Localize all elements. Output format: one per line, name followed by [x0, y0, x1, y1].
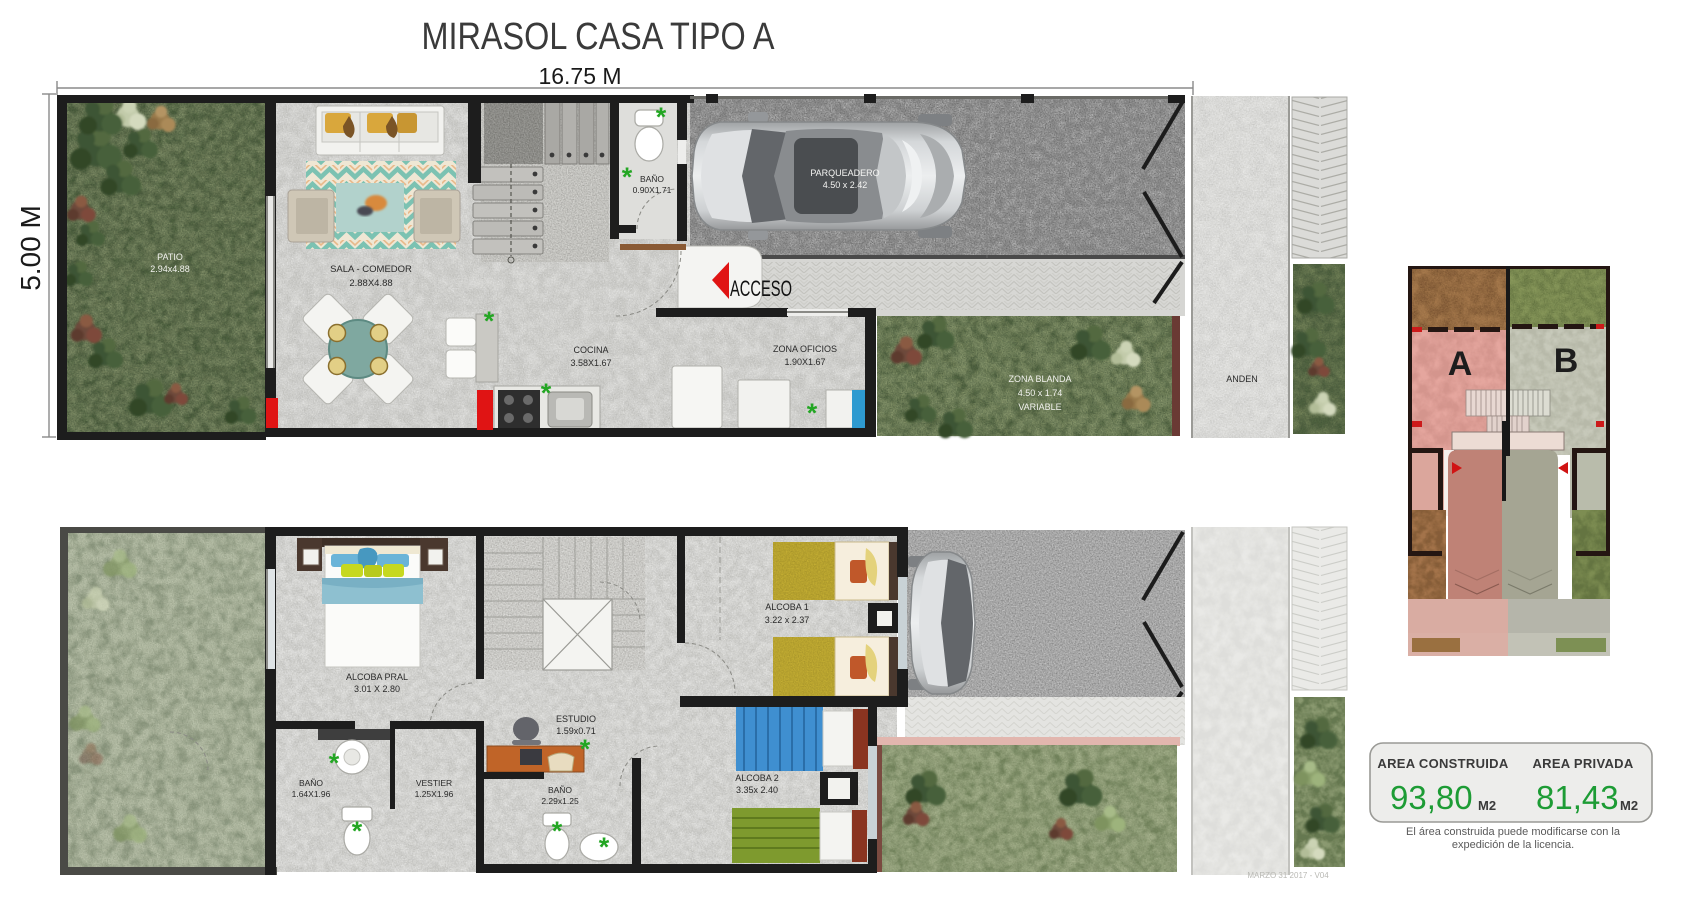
svg-text:VARIABLE: VARIABLE: [1018, 402, 1061, 412]
svg-text:ESTUDIO: ESTUDIO: [556, 714, 596, 724]
svg-text:BAÑO: BAÑO: [299, 778, 323, 788]
svg-text:0.90X1.71: 0.90X1.71: [633, 185, 672, 195]
svg-text:5.00 M: 5.00 M: [15, 205, 46, 291]
svg-text:2.88X4.88: 2.88X4.88: [349, 278, 392, 289]
svg-text:M2: M2: [1620, 798, 1638, 813]
svg-text:*: *: [807, 398, 818, 428]
svg-text:*: *: [580, 734, 591, 764]
svg-text:4.50 x 2.42: 4.50 x 2.42: [823, 180, 868, 190]
svg-text:A: A: [1448, 345, 1473, 383]
svg-text:3.01 X 2.80: 3.01 X 2.80: [354, 684, 400, 694]
svg-text:ALCOBA 1: ALCOBA 1: [765, 602, 809, 612]
svg-text:El área construida puede modif: El área construida puede modificarse con…: [1406, 826, 1621, 838]
svg-text:93,80: 93,80: [1390, 779, 1473, 816]
svg-text:16.75 M: 16.75 M: [538, 63, 621, 89]
svg-text:PARQUEADERO: PARQUEADERO: [810, 168, 879, 178]
svg-text:VESTIER: VESTIER: [416, 778, 452, 788]
svg-text:AREA CONSTRUIDA: AREA CONSTRUIDA: [1377, 756, 1508, 771]
svg-text:*: *: [352, 816, 363, 846]
svg-text:*: *: [541, 378, 552, 408]
svg-text:PATIO: PATIO: [157, 252, 183, 262]
svg-text:3.58X1.67: 3.58X1.67: [570, 358, 611, 368]
svg-text:*: *: [599, 832, 610, 862]
svg-text:BAÑO: BAÑO: [640, 174, 664, 184]
svg-text:3.22 x 2.37: 3.22 x 2.37: [765, 615, 810, 625]
svg-text:1.64X1.96: 1.64X1.96: [292, 789, 331, 799]
svg-text:*: *: [484, 306, 495, 336]
svg-text:ACCESO: ACCESO: [730, 276, 792, 301]
svg-text:*: *: [552, 816, 563, 846]
svg-text:MARZO 31 2017 - V04: MARZO 31 2017 - V04: [1247, 871, 1329, 880]
svg-text:MIRASOL CASA TIPO A: MIRASOL CASA TIPO A: [422, 16, 776, 58]
svg-text:81,43: 81,43: [1536, 779, 1619, 816]
svg-text:COCINA: COCINA: [573, 345, 608, 355]
svg-text:3.35x 2.40: 3.35x 2.40: [736, 785, 778, 795]
svg-text:2.94x4.88: 2.94x4.88: [150, 264, 190, 274]
svg-text:ALCOBA PRAL: ALCOBA PRAL: [346, 672, 408, 682]
svg-text:*: *: [329, 748, 340, 778]
svg-text:*: *: [656, 102, 667, 132]
svg-text:1.90X1.67: 1.90X1.67: [784, 357, 825, 367]
svg-text:M2: M2: [1478, 798, 1496, 813]
svg-text:ZONA OFICIOS: ZONA OFICIOS: [773, 344, 837, 354]
svg-text:2.29x1.25: 2.29x1.25: [541, 796, 579, 806]
svg-text:B: B: [1554, 342, 1579, 380]
svg-text:expedición de la licencia.: expedición de la licencia.: [1452, 839, 1574, 851]
svg-text:ALCOBA 2: ALCOBA 2: [735, 773, 779, 783]
svg-text:4.50 x 1.74: 4.50 x 1.74: [1018, 388, 1063, 398]
svg-text:ZONA BLANDA: ZONA BLANDA: [1008, 374, 1071, 384]
svg-text:ANDEN: ANDEN: [1226, 374, 1258, 384]
svg-text:AREA PRIVADA: AREA PRIVADA: [1532, 756, 1633, 771]
svg-text:BAÑO: BAÑO: [548, 785, 572, 795]
svg-text:*: *: [622, 162, 633, 192]
svg-text:SALA - COMEDOR: SALA - COMEDOR: [330, 264, 412, 275]
svg-text:1.25X1.96: 1.25X1.96: [415, 789, 454, 799]
